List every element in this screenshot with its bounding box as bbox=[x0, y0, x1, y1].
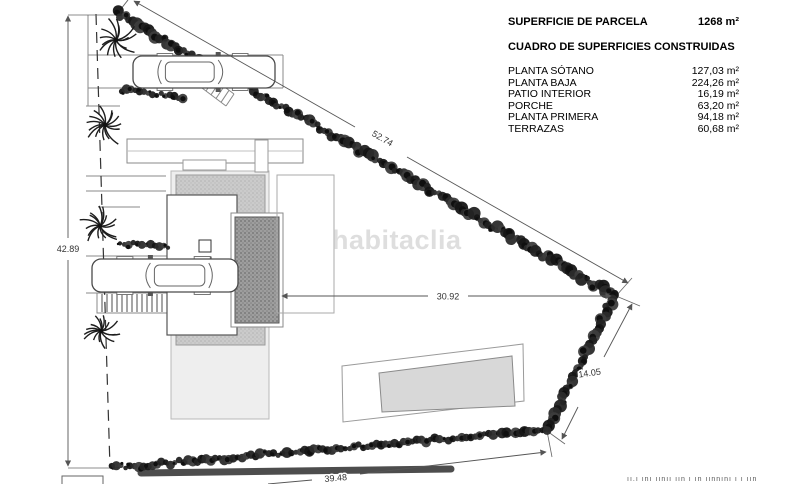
corner-detail bbox=[62, 476, 103, 484]
drawing-caption-cropped: ıı.ı ını ıınıı ıın ı ın ıınnını ı ı ıın bbox=[627, 476, 757, 483]
boundary-hedge bbox=[117, 240, 170, 251]
table-row: PLANTA SÓTANO 127,03 m² bbox=[508, 66, 739, 78]
skylight bbox=[199, 240, 211, 252]
car-top-view bbox=[133, 52, 275, 92]
surfaces-table-title: CUADRO DE SUPERFICIES CONSTRUIDAS bbox=[508, 41, 739, 53]
boundary-hedge bbox=[109, 426, 552, 472]
watermark: habitaclia bbox=[332, 225, 462, 256]
parcela-row: SUPERFICIE DE PARCELA 1268 m² bbox=[508, 16, 739, 28]
dimension-label-top: 52.74 bbox=[370, 128, 395, 148]
side-structure bbox=[255, 140, 268, 172]
palm-tree-icon bbox=[80, 206, 117, 241]
row-label: TERRAZAS bbox=[508, 124, 564, 136]
porch-outline bbox=[277, 175, 334, 313]
dimension-label-right: 14.05 bbox=[578, 367, 602, 380]
interior-patio bbox=[235, 217, 279, 323]
table-row: TERRAZAS 60,68 m² bbox=[508, 124, 739, 136]
car-top-view bbox=[92, 255, 238, 296]
parcela-label: SUPERFICIE DE PARCELA bbox=[508, 16, 648, 28]
dimension-label-left: 42.89 bbox=[57, 244, 80, 254]
retaining-wall bbox=[141, 469, 451, 473]
summary-panel: SUPERFICIE DE PARCELA 1268 m² CUADRO DE … bbox=[508, 16, 739, 136]
site-plan-page: 42.89 52.74 30.92 14.05 39.48 habitaclia… bbox=[0, 0, 800, 484]
west-boundary-dashed bbox=[96, 14, 110, 468]
row-value: 60,68 m² bbox=[698, 124, 739, 136]
palm-tree-icon bbox=[84, 315, 120, 348]
boundary-hedge bbox=[542, 290, 619, 432]
surfaces-table: PLANTA SÓTANO 127,03 m² PLANTA BAJA 224,… bbox=[508, 66, 739, 136]
parcela-value: 1268 m² bbox=[698, 16, 739, 28]
striped-paving bbox=[97, 293, 167, 313]
row-value: 127,03 m² bbox=[692, 66, 739, 78]
dimension-label-middle: 30.92 bbox=[437, 292, 460, 302]
entry-step bbox=[183, 160, 226, 170]
pool-area bbox=[342, 344, 524, 422]
row-label: PLANTA SÓTANO bbox=[508, 66, 594, 78]
palm-tree-icon bbox=[87, 106, 122, 144]
dimension-label-bottom: 39.48 bbox=[324, 472, 347, 484]
